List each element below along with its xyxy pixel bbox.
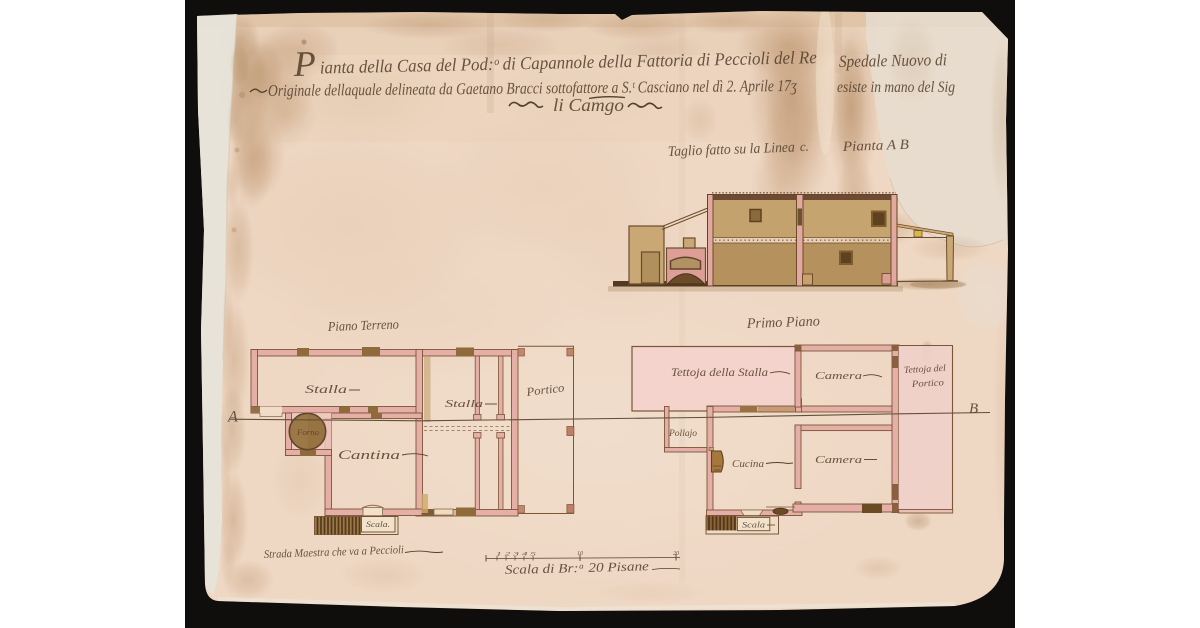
svg-text:Camera: Camera [815, 370, 863, 382]
svg-text:c.: c. [800, 139, 810, 154]
svg-text:li Camgo: li Camgo [553, 95, 624, 115]
svg-text:20: 20 [673, 551, 679, 557]
svg-text:Primo Piano: Primo Piano [746, 313, 820, 332]
svg-text:esiste in mano del Sig: esiste in mano del Sig [837, 79, 955, 96]
svg-text:Forno: Forno [296, 427, 319, 437]
svg-text:Pianta A B: Pianta A B [842, 138, 910, 155]
svg-text:P: P [292, 44, 316, 84]
svg-text:Spedale Nuovo di: Spedale Nuovo di [839, 50, 948, 71]
svg-text:Scala.: Scala. [366, 520, 390, 529]
svg-text:Scala: Scala [742, 521, 765, 530]
svg-text:Portico: Portico [911, 378, 945, 390]
svg-text:Cantina: Cantina [338, 447, 401, 462]
svg-text:A: A [227, 409, 238, 426]
svg-text:Stalla: Stalla [305, 384, 347, 396]
svg-text:Stalla: Stalla [445, 398, 484, 410]
svg-text:Camera: Camera [815, 454, 863, 466]
svg-text:Cucina: Cucina [732, 459, 764, 470]
svg-text:10: 10 [577, 551, 583, 557]
svg-text:1 2 3 4 5: 1 2 3 4 5 [496, 551, 537, 558]
svg-text:Piano Terreno: Piano Terreno [327, 317, 400, 335]
svg-text:B: B [969, 401, 978, 417]
svg-text:Pollajo: Pollajo [668, 429, 697, 439]
svg-text:Tettoja della Stalla: Tettoja della Stalla [671, 365, 768, 379]
